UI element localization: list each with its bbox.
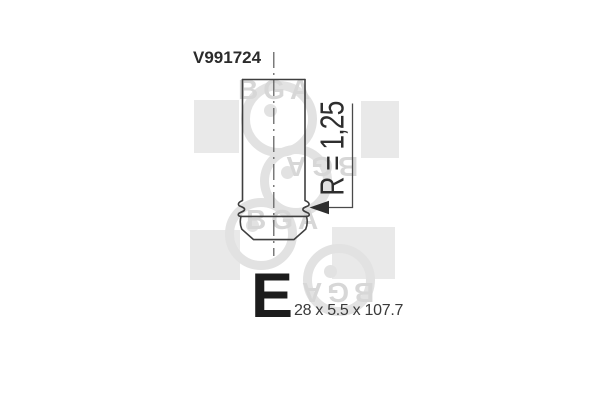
radius-annotation: R = 1,25 xyxy=(316,101,349,197)
dimensions-label: 28 x 5.5 x 107.7 xyxy=(294,303,403,319)
stem-right-edge xyxy=(303,80,309,217)
valve-technical-drawing xyxy=(0,0,600,400)
catalog-diagram-canvas: BGA BGA BGA BGA V991724 R = 1,25 xyxy=(0,0,600,400)
arrow-left-icon xyxy=(310,201,330,214)
part-number-label: V991724 xyxy=(193,49,261,66)
stem-left-edge xyxy=(238,80,244,217)
valve-outline xyxy=(238,80,309,240)
valve-type-letter: E xyxy=(251,265,293,328)
